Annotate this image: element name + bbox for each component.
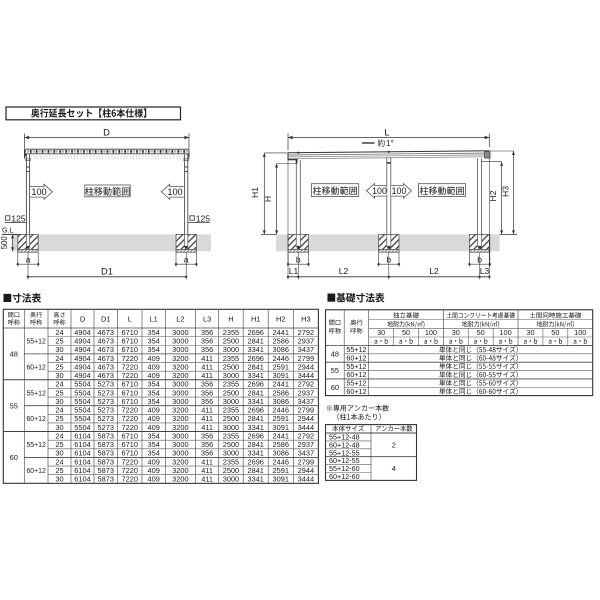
svg-text:2792: 2792 — [298, 380, 314, 389]
svg-text:L: L — [384, 127, 389, 137]
svg-text:L3: L3 — [480, 266, 490, 276]
svg-text:H3: H3 — [301, 314, 310, 323]
svg-text:L1: L1 — [289, 266, 299, 276]
svg-text:60+12: 60+12 — [346, 387, 366, 396]
svg-text:55: 55 — [331, 366, 339, 375]
svg-text:6710: 6710 — [122, 380, 138, 389]
svg-text:50: 50 — [402, 328, 410, 337]
svg-text:100: 100 — [499, 328, 511, 337]
svg-text:4: 4 — [392, 464, 396, 473]
svg-text:3000: 3000 — [223, 475, 239, 484]
svg-text:48: 48 — [10, 349, 18, 358]
svg-text:100: 100 — [425, 328, 437, 337]
svg-text:D: D — [103, 127, 110, 137]
svg-text:5504: 5504 — [74, 380, 90, 389]
svg-text:7220: 7220 — [122, 475, 138, 484]
svg-text:H2: H2 — [276, 314, 285, 323]
svg-text:125: 125 — [196, 213, 211, 223]
svg-text:L: L — [128, 314, 132, 323]
svg-text:48: 48 — [331, 349, 339, 358]
svg-text:3341: 3341 — [247, 475, 263, 484]
svg-text:125: 125 — [11, 213, 26, 223]
svg-text:411: 411 — [201, 475, 213, 484]
svg-text:H3: H3 — [501, 186, 511, 197]
svg-text:100: 100 — [392, 186, 407, 196]
svg-text:60+12-60: 60+12-60 — [329, 472, 360, 481]
svg-text:55+12: 55+12 — [26, 442, 46, 449]
svg-text:L2: L2 — [339, 266, 349, 276]
svg-text:5273: 5273 — [98, 380, 114, 389]
svg-text:30: 30 — [377, 328, 385, 337]
svg-text:3091: 3091 — [273, 475, 289, 484]
svg-text:H1: H1 — [250, 187, 260, 198]
svg-text:6104: 6104 — [74, 475, 90, 484]
svg-text:2: 2 — [392, 440, 396, 449]
svg-text:D1: D1 — [101, 266, 113, 276]
svg-text:H: H — [263, 196, 273, 202]
svg-text:H1: H1 — [251, 314, 260, 323]
svg-text:500: 500 — [0, 236, 9, 250]
svg-text:24: 24 — [55, 380, 63, 389]
svg-text:55: 55 — [10, 401, 18, 410]
svg-text:60: 60 — [10, 453, 18, 462]
svg-text:2441: 2441 — [273, 380, 289, 389]
svg-text:30: 30 — [55, 475, 63, 484]
svg-text:H: H — [228, 314, 233, 323]
svg-text:100: 100 — [574, 328, 586, 337]
svg-text:D: D — [80, 314, 85, 323]
svg-text:60: 60 — [331, 383, 339, 392]
svg-text:D1: D1 — [101, 314, 110, 323]
svg-text:3200: 3200 — [172, 475, 188, 484]
svg-text:60+12: 60+12 — [26, 416, 46, 423]
svg-text:L2: L2 — [176, 314, 184, 323]
svg-text:2355: 2355 — [223, 380, 239, 389]
svg-text:60+12: 60+12 — [26, 364, 46, 371]
svg-text:60+12: 60+12 — [26, 468, 46, 475]
svg-text:55+12: 55+12 — [26, 339, 46, 346]
svg-text:55+12: 55+12 — [26, 390, 46, 397]
svg-text:30: 30 — [526, 328, 534, 337]
svg-text:354: 354 — [147, 380, 159, 389]
svg-text:409: 409 — [147, 475, 159, 484]
svg-text:50: 50 — [551, 328, 559, 337]
svg-text:100: 100 — [31, 187, 46, 197]
svg-text:356: 356 — [201, 380, 213, 389]
svg-text:G.L: G.L — [2, 225, 14, 234]
svg-text:1°: 1° — [386, 139, 394, 148]
svg-text:5873: 5873 — [98, 475, 114, 484]
svg-text:3000: 3000 — [172, 380, 188, 389]
svg-text:L3: L3 — [203, 314, 211, 323]
svg-text:50: 50 — [477, 328, 485, 337]
svg-text:30: 30 — [452, 328, 460, 337]
svg-text:3444: 3444 — [298, 475, 314, 484]
svg-text:2696: 2696 — [247, 380, 263, 389]
svg-text:100: 100 — [372, 186, 387, 196]
svg-text:L2: L2 — [429, 266, 439, 276]
svg-text:100: 100 — [167, 187, 182, 197]
svg-text:L1: L1 — [150, 314, 158, 323]
